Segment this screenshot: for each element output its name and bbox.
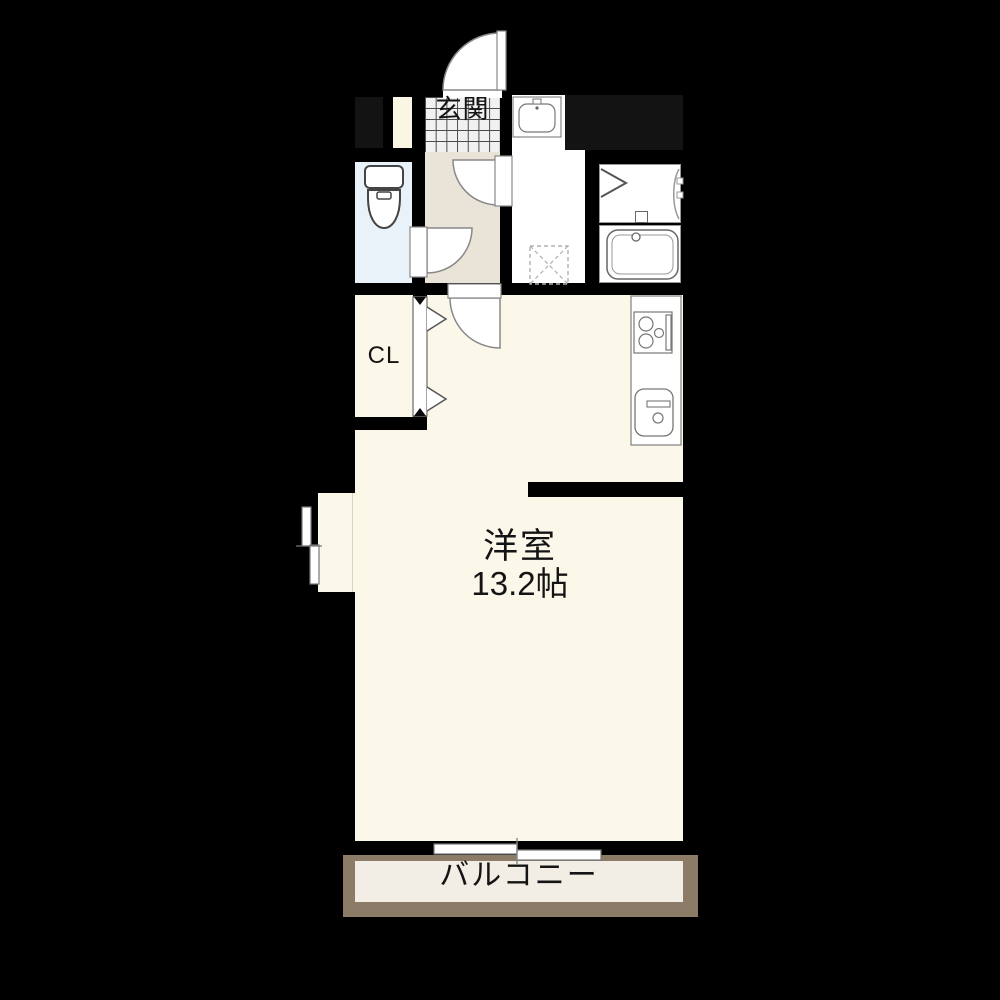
closet-label: CL <box>356 344 412 368</box>
kitchen-unit-icon <box>630 295 682 446</box>
nook-floor <box>393 97 412 148</box>
stove-burner-3 <box>655 329 664 338</box>
toilet-icon <box>362 162 406 234</box>
living-size-label: 13.2帖 <box>420 567 620 600</box>
hallway-door-icon <box>448 150 518 214</box>
bathroom-doorway <box>566 150 585 223</box>
door-swing-arc <box>427 228 472 273</box>
toilet-door-icon <box>405 220 480 284</box>
stove-grill <box>666 315 671 350</box>
sink-lever <box>647 401 670 407</box>
entrance-door-icon <box>440 28 515 98</box>
balcony-label: バルコニー <box>355 861 683 891</box>
bath-step <box>635 211 648 223</box>
sliding-pane-left <box>434 844 517 854</box>
window-left-icon <box>296 503 322 583</box>
partial-wall <box>528 482 698 497</box>
bathtub-icon <box>603 226 682 282</box>
door-leaf <box>497 31 506 90</box>
sink-faucet <box>653 413 663 423</box>
handle-top <box>677 178 683 184</box>
door-track <box>413 297 427 416</box>
fold-chevron-top <box>427 307 446 331</box>
void-space-top-right <box>565 95 683 150</box>
vanity-drain <box>535 106 538 109</box>
window-pane-outer <box>302 507 311 546</box>
door-swing-arc <box>443 33 500 90</box>
toilet-seat-hinge <box>377 192 391 199</box>
fold-chevron-bottom <box>427 387 446 411</box>
door-leaf <box>410 227 427 277</box>
stove-burner-2 <box>639 334 653 348</box>
shower-partition-icon <box>668 168 684 220</box>
living-room-label: 洋室 <box>420 529 620 564</box>
stove-burner-1 <box>639 317 653 331</box>
door-swing-arc <box>453 160 498 205</box>
washer-pan-icon <box>528 244 570 286</box>
bath-folding-door-icon <box>598 164 638 204</box>
closet-folding-door-icon <box>410 294 458 420</box>
toilet-tank <box>365 166 403 188</box>
bathtub-faucet <box>632 233 640 241</box>
window-pane-inner <box>310 545 319 584</box>
door-leaf <box>495 156 512 206</box>
bathtub-inner <box>612 235 673 274</box>
vanity-sink-icon <box>512 96 562 138</box>
bay-edge-line <box>352 493 353 592</box>
kitchen-sink-icon <box>635 389 673 436</box>
vanity-faucet <box>533 99 541 104</box>
fold-chevron <box>601 169 626 197</box>
genkan-label: 玄関 <box>425 96 500 122</box>
handle-bottom <box>677 192 683 198</box>
floor-plan: 玄関 CL 洋室 13.2帖 バルコニー <box>0 0 1000 1000</box>
void-shaft-top-left <box>355 97 383 148</box>
